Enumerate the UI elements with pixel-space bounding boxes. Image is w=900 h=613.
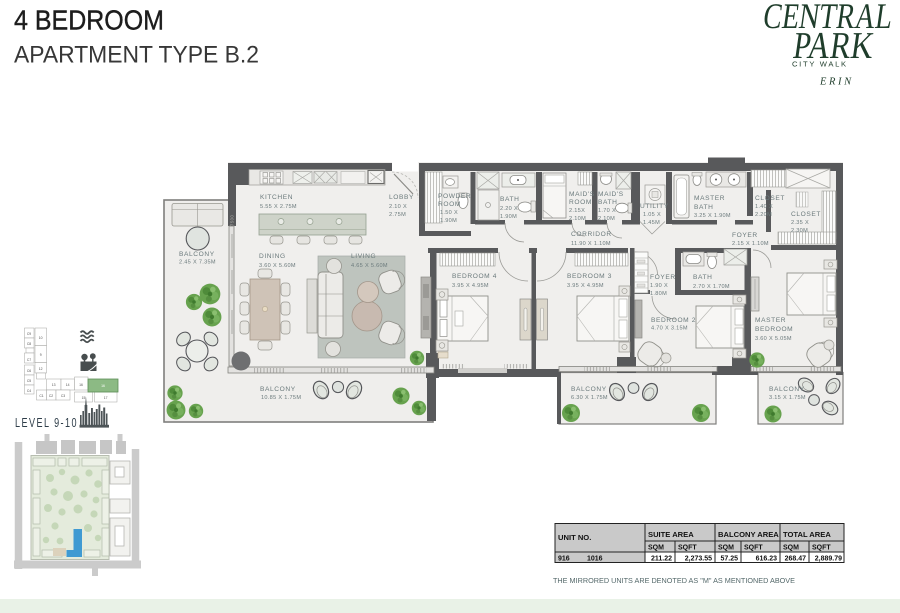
svg-text:BALCONY: BALCONY [571,386,607,393]
svg-text:LIVING: LIVING [351,253,376,260]
svg-text:C9: C9 [27,332,31,336]
svg-text:1.50 X: 1.50 X [440,210,458,216]
svg-text:4 BEDROOM: 4 BEDROOM [14,5,164,36]
svg-text:MASTER: MASTER [755,317,786,324]
svg-text:2.10M: 2.10M [598,216,615,222]
svg-text:1.90M: 1.90M [440,218,457,224]
svg-text:1.90M: 1.90M [500,214,517,220]
svg-text:BATH: BATH [693,274,713,281]
svg-text:2.70 X 1.70M: 2.70 X 1.70M [693,284,730,290]
svg-text:3.60 X 5.05M: 3.60 X 5.05M [755,336,792,342]
svg-text:2.75M: 2.75M [389,212,406,218]
svg-text:916: 916 [558,556,570,563]
svg-text:C4: C4 [27,389,31,393]
svg-text:POWDER: POWDER [438,193,471,200]
svg-text:SQM: SQM [783,545,799,552]
svg-text:211.22: 211.22 [651,556,672,563]
svg-text:ROOM: ROOM [569,199,592,206]
svg-text:616.23: 616.23 [756,556,778,563]
svg-text:1016: 1016 [587,556,603,563]
svg-text:BATH: BATH [598,199,618,206]
svg-text:10.85 X 1.75M: 10.85 X 1.75M [261,395,301,401]
svg-text:1.90 X: 1.90 X [650,283,668,289]
svg-text:DINING: DINING [259,253,286,260]
svg-text:2.10 X: 2.10 X [389,204,407,210]
svg-text:BATH: BATH [500,196,520,203]
svg-text:2.35 X: 2.35 X [791,220,809,226]
svg-text:APARTMENT TYPE B.2: APARTMENT TYPE B.2 [14,42,259,69]
svg-text:SQM: SQM [648,545,664,552]
svg-text:THE MIRRORED UNITS ARE DENOTED: THE MIRRORED UNITS ARE DENOTED AS "M" AS… [553,576,795,585]
svg-text:BEDROOM 2: BEDROOM 2 [651,317,696,324]
svg-text:KITCHEN: KITCHEN [260,194,293,201]
svg-text:3.95 X 4.95M: 3.95 X 4.95M [452,283,489,289]
svg-text:2.30M: 2.30M [791,228,808,234]
svg-text:C7: C7 [27,358,31,362]
svg-text:SQFT: SQFT [744,545,763,552]
svg-text:3.95 X 4.95M: 3.95 X 4.95M [567,283,604,289]
svg-text:16: 16 [101,384,105,388]
svg-text:MASTER: MASTER [694,195,725,202]
svg-text:1.70 X: 1.70 X [598,208,616,214]
svg-text:C2: C2 [49,394,53,398]
svg-text:SQFT: SQFT [812,545,831,552]
svg-text:MAID'S: MAID'S [598,191,624,198]
svg-text:2.10M: 2.10M [569,216,586,222]
svg-text:12: 12 [39,367,43,371]
svg-text:BEDROOM 4: BEDROOM 4 [452,273,497,280]
svg-text:C8: C8 [27,342,31,346]
svg-text:C3: C3 [61,394,65,398]
svg-text:57.25: 57.25 [720,556,738,563]
svg-text:2,273.55: 2,273.55 [685,556,712,563]
svg-text:1.05 X: 1.05 X [643,212,661,218]
svg-text:3.15 X 1.75M: 3.15 X 1.75M [769,395,806,401]
svg-text:C1: C1 [39,394,43,398]
svg-text:C6: C6 [27,369,31,373]
svg-text:UNIT NO.: UNIT NO. [558,533,591,542]
svg-text:ROOM: ROOM [438,201,461,208]
svg-text:9: 9 [40,353,42,357]
svg-text:1.45M: 1.45M [643,220,660,226]
svg-text:TOTAL AREA: TOTAL AREA [783,530,831,539]
svg-text:BATH: BATH [694,204,714,211]
svg-text:2,889.79: 2,889.79 [815,556,842,563]
svg-text:SQFT: SQFT [678,545,697,552]
svg-text:7500: 7500 [230,215,235,226]
svg-text:1.80M: 1.80M [650,291,667,297]
svg-text:3.60 X 5.60M: 3.60 X 5.60M [259,263,296,269]
svg-text:2.15X: 2.15X [569,208,585,214]
svg-text:2.20M: 2.20M [755,212,772,218]
svg-text:11.90 X 1.10M: 11.90 X 1.10M [571,241,611,247]
svg-text:BALCONY: BALCONY [260,386,296,393]
svg-text:15: 15 [82,396,86,400]
svg-text:5.55 X 2.75M: 5.55 X 2.75M [260,204,297,210]
svg-text:6.30 X 1.75M: 6.30 X 1.75M [571,395,608,401]
svg-text:BALCONY AREA: BALCONY AREA [718,530,779,539]
svg-text:MAID'S: MAID'S [569,191,595,198]
svg-text:C5: C5 [27,379,31,383]
svg-text:FOYER: FOYER [732,232,758,239]
svg-text:2.15 X 1.10M: 2.15 X 1.10M [732,241,769,247]
svg-text:1.40 X: 1.40 X [755,204,773,210]
svg-text:CLOSET: CLOSET [755,195,785,202]
svg-text:2.20 X: 2.20 X [500,206,518,212]
svg-text:BEDROOM 3: BEDROOM 3 [567,273,612,280]
svg-text:268.47: 268.47 [785,556,807,563]
svg-text:17: 17 [104,396,108,400]
svg-text:UTILITY: UTILITY [640,203,669,210]
svg-text:FOYER: FOYER [650,274,676,281]
svg-text:13: 13 [52,383,56,387]
svg-text:CLOSET: CLOSET [791,211,821,218]
svg-text:LEVEL 9-10: LEVEL 9-10 [15,416,78,430]
svg-text:4.65 X 5.60M: 4.65 X 5.60M [351,263,388,269]
svg-text:BALCONY: BALCONY [769,386,805,393]
svg-text:CORRIDOR: CORRIDOR [571,231,612,238]
svg-text:BEDROOM: BEDROOM [755,326,793,333]
svg-text:10: 10 [39,336,43,340]
svg-text:4.70 X 3.15M: 4.70 X 3.15M [651,326,688,332]
svg-text:SUITE AREA: SUITE AREA [648,530,694,539]
svg-text:16: 16 [79,383,83,387]
svg-text:SQM: SQM [718,545,734,552]
svg-text:2.45 X 7.35M: 2.45 X 7.35M [179,260,216,266]
svg-text:ERIN: ERIN [819,77,854,88]
svg-text:LOBBY: LOBBY [389,194,414,201]
svg-text:BALCONY: BALCONY [179,251,215,258]
svg-text:14: 14 [66,383,70,387]
svg-text:CITY WALK: CITY WALK [792,60,848,69]
svg-text:3.25 X 1.90M: 3.25 X 1.90M [694,213,731,219]
